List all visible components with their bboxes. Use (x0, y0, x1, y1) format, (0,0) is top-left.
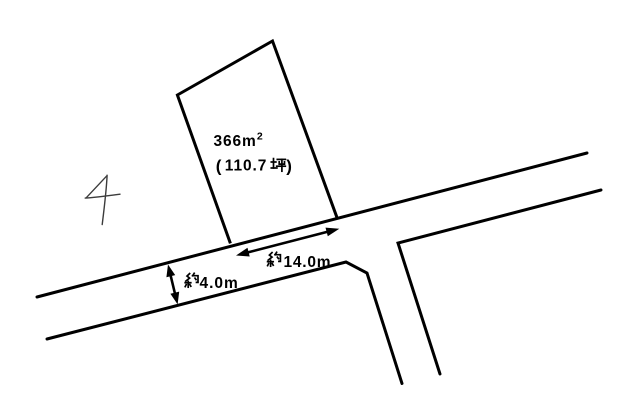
svg-text:14.0m: 14.0m (284, 254, 332, 271)
svg-text:): ) (286, 157, 292, 176)
svg-text:4.0m: 4.0m (200, 275, 239, 292)
svg-text:(: ( (216, 157, 222, 176)
svg-text:2: 2 (257, 131, 263, 143)
svg-text:110.7: 110.7 (225, 158, 267, 175)
svg-text:366m: 366m (214, 133, 257, 150)
